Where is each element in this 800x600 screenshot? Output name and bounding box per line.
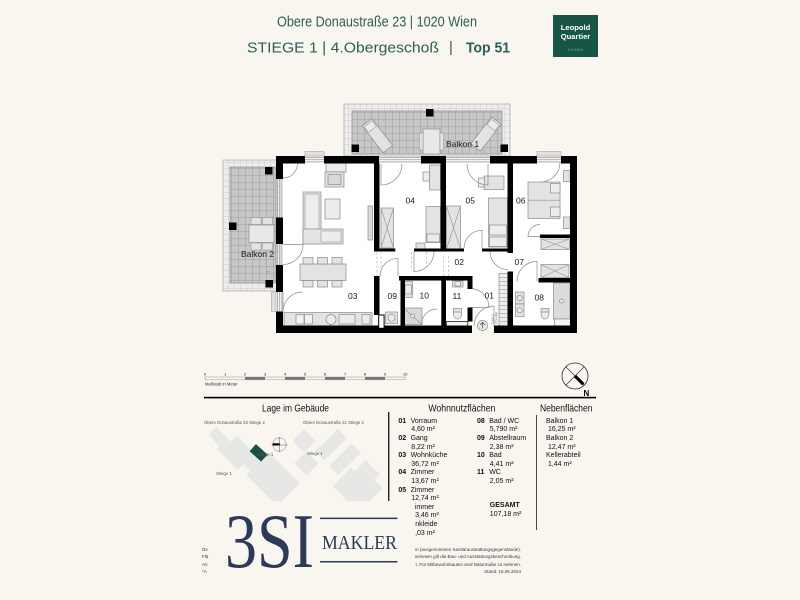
svg-text:MAKLER: MAKLER	[322, 532, 397, 554]
svg-text:3SI: 3SI	[225, 498, 314, 584]
